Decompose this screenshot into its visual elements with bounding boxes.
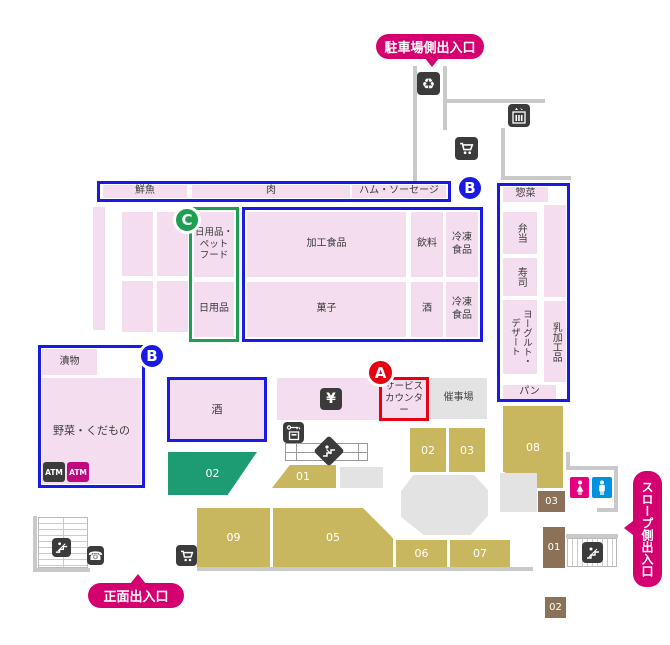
corridor-line [597,508,618,512]
register-block: 02 [410,428,446,472]
toilet-female-icon [570,477,589,498]
island-block [401,475,488,535]
area-drinks: 飲料 [411,212,443,277]
area-bread: パン [503,385,556,399]
marker-b-top: B [456,174,484,202]
marker-b-left: B [138,342,166,370]
area-event-space: 催事場 [430,378,487,419]
room-block: 01 [543,527,565,568]
cart-icon [176,545,197,566]
parking-entrance-label: 駐車場側出入口 [376,34,484,59]
stairs-icon [52,538,71,557]
main-entrance-label: 正面出入口 [88,583,184,608]
register-block: 07 [450,540,510,567]
area-deli: 惣菜 [503,187,548,202]
corridor-line [614,466,618,512]
area-sushi: 寿司 [503,258,537,296]
register-block: 01 [270,465,336,488]
shelf [157,281,188,332]
gray-block [500,473,537,512]
marker-c: C [173,206,201,234]
register-block-green: 02 [168,452,257,495]
shelf [122,281,153,332]
bubble-tail [424,57,440,67]
room-block: 02 [545,597,566,618]
marker-a: A [366,358,395,387]
bubble-tail [624,521,633,535]
corridor-line [501,128,505,180]
coin-locker-icon [283,422,304,443]
toilet-male-icon [592,477,612,498]
room-block: 03 [538,491,565,512]
area-sweets: 菓子 [247,282,406,337]
cash-register-icon: ¥ [320,388,342,410]
corridor-line [501,176,571,180]
shelf [544,205,566,297]
register-block: 06 [396,540,447,567]
area-pickles: 漬物 [42,349,97,375]
area-sake: 酒 [170,380,264,439]
slope-entrance-label: スロープ側出入口 [633,471,662,587]
gray-block [340,467,383,488]
shelf [122,212,153,276]
register-block: 09 [197,508,270,567]
shelf-strip [93,207,105,330]
cart-icon [455,137,478,160]
area-frozen-food-bottom: 冷凍 食品 [446,282,478,337]
phone-icon: ☎ [87,546,104,565]
register-block: 05 [273,508,393,567]
escalator-icon [318,440,340,462]
area-ham-sausage: ハム・ソーセージ [352,185,446,198]
store-floor-map: 鮮魚 肉 ハム・ソーセージ B 日用品・ ペット フード 日用品 C 加工食品 … [0,0,670,645]
register-block: 03 [449,428,485,472]
corridor-line [443,99,545,103]
corridor-line [443,66,447,130]
bubble-tail [130,574,146,584]
area-sake-small: 酒 [411,282,443,337]
area-bento: 弁当 [503,212,537,254]
atm-icon: ATM [67,462,89,482]
area-dairy: 乳加工品 [544,301,566,382]
area-daily: 日用品 [194,282,234,337]
area-processed-food: 加工食品 [247,212,406,277]
atm-icon: ATM [43,462,65,482]
recycle-icon: ♻ [417,72,440,95]
elevator-icon [508,104,530,127]
area-yogurt-dessert: ヨーグルト・ デザート [503,300,537,374]
area-frozen-food-top: 冷凍 食品 [446,212,478,277]
corridor-line [33,516,37,572]
corridor-line [197,567,533,571]
corridor-line [566,466,618,470]
corridor-line [33,568,90,572]
stairs-icon [582,542,603,563]
area-meat: 肉 [192,185,350,198]
area-fresh-fish: 鮮魚 [103,185,187,198]
